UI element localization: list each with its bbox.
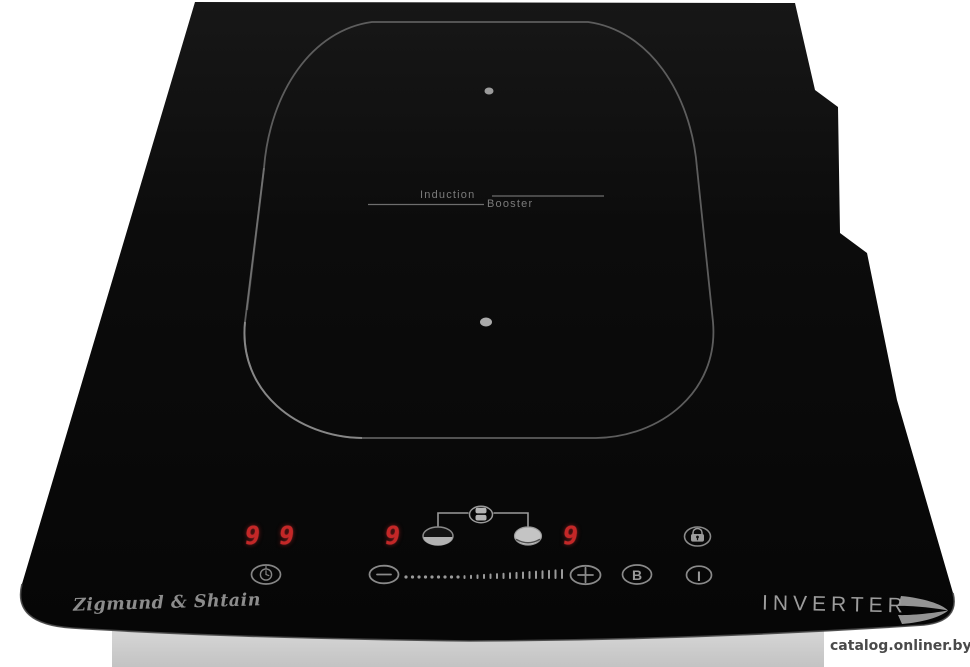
zone-label-booster: Booster xyxy=(487,198,533,210)
inverter-badge: INVERTER xyxy=(762,591,908,618)
watermark: catalog.onliner.by xyxy=(830,638,970,654)
zone-center-dot-top xyxy=(485,88,494,95)
lock-icon-keyhole-slot xyxy=(697,538,698,541)
bridge-icon-bottom-pan xyxy=(476,515,487,521)
power-button-label[interactable]: I xyxy=(697,569,701,583)
right-zone-selector[interactable] xyxy=(515,527,542,545)
timer-display: 99 xyxy=(243,523,315,548)
product-photo: Induction Booster 99 9 9 B I Zigmund & S… xyxy=(0,0,970,667)
zone-label-induction: Induction xyxy=(420,189,475,201)
zone-center-dot-bottom xyxy=(480,318,492,327)
bridge-icon-top-pan xyxy=(476,508,487,514)
booster-button-label[interactable]: B xyxy=(632,568,642,582)
cooktop-graphic xyxy=(0,0,970,667)
left-zone-selector[interactable] xyxy=(423,527,453,546)
